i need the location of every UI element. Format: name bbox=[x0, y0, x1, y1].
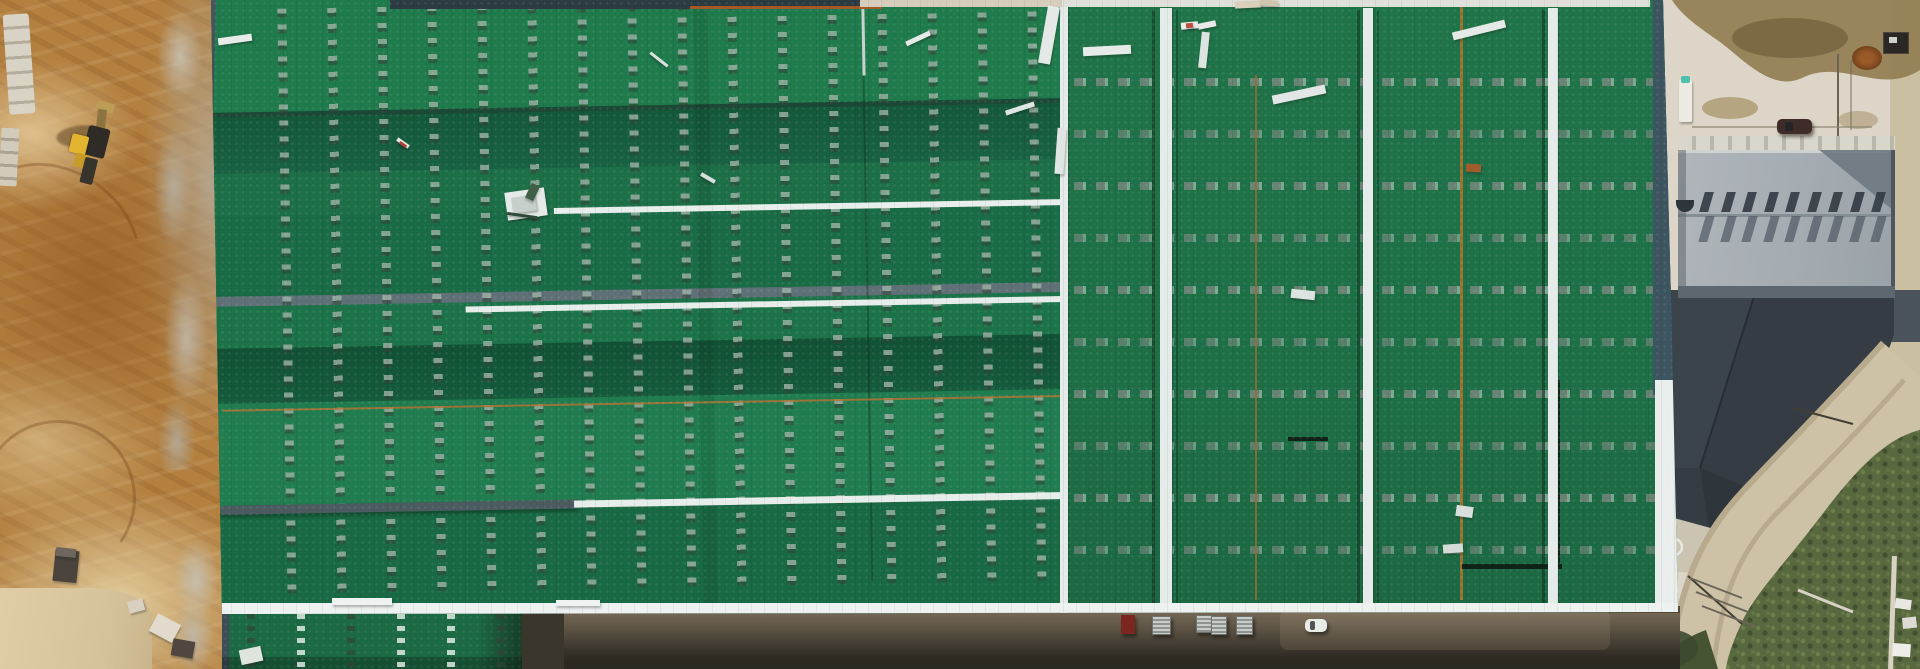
roof-vent-shadow bbox=[1764, 192, 1779, 212]
car-windshield bbox=[1785, 122, 1793, 132]
debris-board bbox=[1455, 505, 1473, 518]
roof-vent-shadow bbox=[1699, 192, 1714, 212]
debris-board bbox=[171, 638, 196, 659]
aux-roof-left-shade bbox=[1678, 150, 1686, 298]
lower-roof-wing bbox=[222, 614, 522, 669]
aux-roof-eave bbox=[1678, 286, 1895, 298]
wet-stain-core bbox=[1732, 18, 1848, 58]
sandy-access-road bbox=[0, 588, 152, 669]
rust-seam-line bbox=[1255, 75, 1257, 600]
flatbed-truck-red bbox=[1121, 615, 1135, 634]
roof-ridge-cap bbox=[1363, 8, 1373, 608]
debris-board bbox=[556, 600, 600, 606]
debris-board bbox=[1235, 0, 1261, 8]
aux-building-roof bbox=[1678, 150, 1895, 298]
car-white bbox=[1305, 619, 1327, 632]
box-truck bbox=[1196, 615, 1212, 633]
roof-vent-shadow bbox=[1806, 216, 1822, 242]
box-truck bbox=[1211, 616, 1227, 635]
right-roof-section bbox=[1060, 0, 1680, 614]
top-edge-light-strip bbox=[860, 0, 1062, 7]
debris-board bbox=[332, 598, 392, 605]
debris-board bbox=[56, 547, 77, 558]
skylight-dash-column bbox=[347, 614, 355, 669]
debris-board bbox=[1466, 164, 1481, 173]
trailer-mark bbox=[1889, 37, 1897, 43]
gravel-strip bbox=[1678, 136, 1895, 150]
roof-vent-shadow bbox=[1850, 192, 1865, 212]
material-pile bbox=[1852, 46, 1882, 70]
stone-block-stack bbox=[0, 128, 20, 187]
left-roof-section bbox=[205, 0, 1091, 640]
skylight-dash-column bbox=[447, 614, 455, 669]
road-shadow-block bbox=[520, 606, 564, 669]
box-truck bbox=[1152, 616, 1171, 635]
aux-roof-right-edge bbox=[1891, 150, 1895, 298]
dark-channel bbox=[1288, 437, 1328, 441]
roof-vent-shadow bbox=[1721, 192, 1736, 212]
dark-channel bbox=[1462, 564, 1562, 569]
corner-structure bbox=[1892, 643, 1911, 657]
roof-vent-shadow bbox=[1742, 192, 1757, 212]
roof-vent-shadow bbox=[1807, 192, 1822, 212]
roof-vent-shadow bbox=[1784, 216, 1800, 242]
car-windshield bbox=[1310, 621, 1315, 629]
roof-vent-shadow bbox=[1763, 216, 1779, 242]
roof-vent-shadow bbox=[1870, 216, 1886, 242]
roof-vent-shadow bbox=[1698, 216, 1714, 242]
roof-ridge-cap bbox=[1548, 8, 1558, 608]
panel-seam bbox=[1176, 10, 1178, 605]
roof-vent-shadow bbox=[1849, 216, 1865, 242]
rubble-strip bbox=[148, 0, 212, 470]
panel-seam bbox=[1377, 10, 1379, 605]
trailer bbox=[1883, 32, 1909, 54]
top-fascia-rust-line bbox=[690, 6, 882, 9]
road-light-patch bbox=[1280, 610, 1610, 650]
panel-seam bbox=[1152, 10, 1155, 605]
roof-vent-shadow bbox=[1828, 192, 1843, 212]
panel-seam bbox=[1357, 10, 1360, 605]
roof-vent-shadow bbox=[1785, 192, 1800, 212]
box-truck bbox=[1236, 616, 1253, 635]
corner-structure bbox=[1902, 617, 1917, 629]
utility-box bbox=[1679, 80, 1692, 122]
utility-box-cap bbox=[1681, 76, 1690, 83]
skylight-dash-column bbox=[397, 614, 405, 669]
wing-bottom-shadow bbox=[222, 657, 522, 669]
debris-board bbox=[1186, 23, 1193, 29]
roof-vent-shadow bbox=[1741, 216, 1757, 242]
roof-ridge-cap bbox=[1160, 8, 1172, 608]
roof-vent-shadow bbox=[1827, 216, 1843, 242]
stain-small bbox=[1702, 97, 1758, 119]
stage bbox=[0, 0, 1920, 669]
car-dark-parked bbox=[1777, 119, 1812, 134]
debris-board bbox=[1443, 543, 1464, 553]
roof-top-edge bbox=[1060, 0, 1650, 7]
panel-seam bbox=[1542, 10, 1545, 605]
roof-vent-shadow bbox=[1720, 216, 1736, 242]
skylight-dash-column bbox=[297, 614, 305, 669]
service-road bbox=[520, 606, 1680, 669]
skylight-dash-column bbox=[497, 614, 505, 669]
roof-ridge-cap bbox=[1060, 0, 1068, 614]
main-warehouse-roof bbox=[205, 0, 1680, 614]
